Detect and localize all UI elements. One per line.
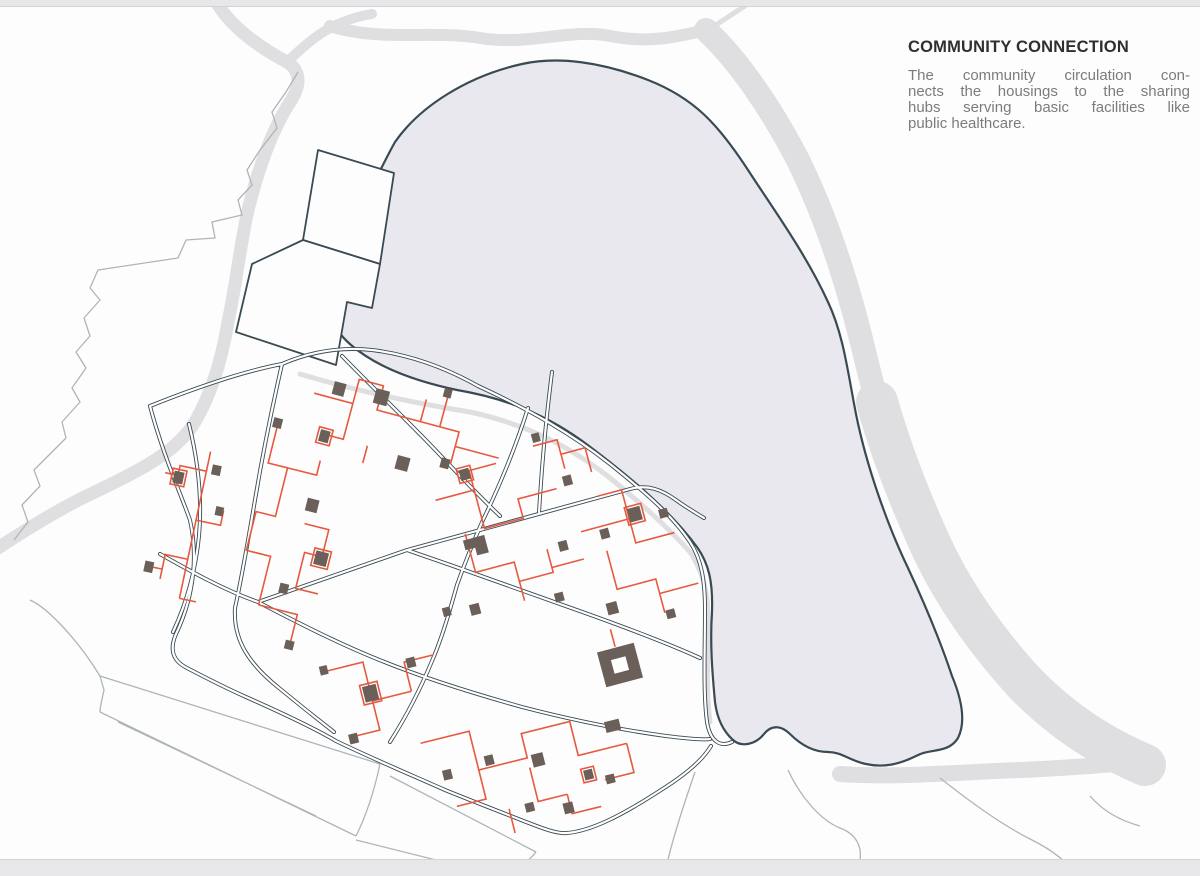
circulation-southwest: [319, 639, 450, 747]
parcel-lines-sw: [100, 676, 380, 836]
top-border-band: [0, 0, 1200, 6]
top-border-edge: [0, 6, 1200, 7]
description-line: The community circulation con-: [908, 68, 1190, 84]
circulation-central: [408, 443, 593, 632]
description-line: public healthcare.: [908, 116, 1190, 132]
courtyard-hub-building: [592, 624, 643, 687]
creek-4: [1090, 796, 1140, 826]
page-description: The community circulation con- nects the…: [908, 68, 1190, 132]
contour-sw: [30, 600, 104, 712]
river-top-band: [330, 26, 706, 40]
circulation-south: [421, 695, 642, 850]
bottom-border-band: [0, 860, 1200, 876]
annotation-panel: COMMUNITY CONNECTION The community circu…: [908, 38, 1190, 132]
description-line: nects the housings to the sharing: [908, 84, 1190, 100]
page-title: COMMUNITY CONNECTION: [908, 38, 1190, 56]
description-line: hubs serving basic facilities like: [908, 100, 1190, 116]
community-connection-slide: { "panel": { "title": "COMMUNITY CONNECT…: [0, 0, 1200, 876]
bottom-border-edge: [0, 859, 1200, 860]
